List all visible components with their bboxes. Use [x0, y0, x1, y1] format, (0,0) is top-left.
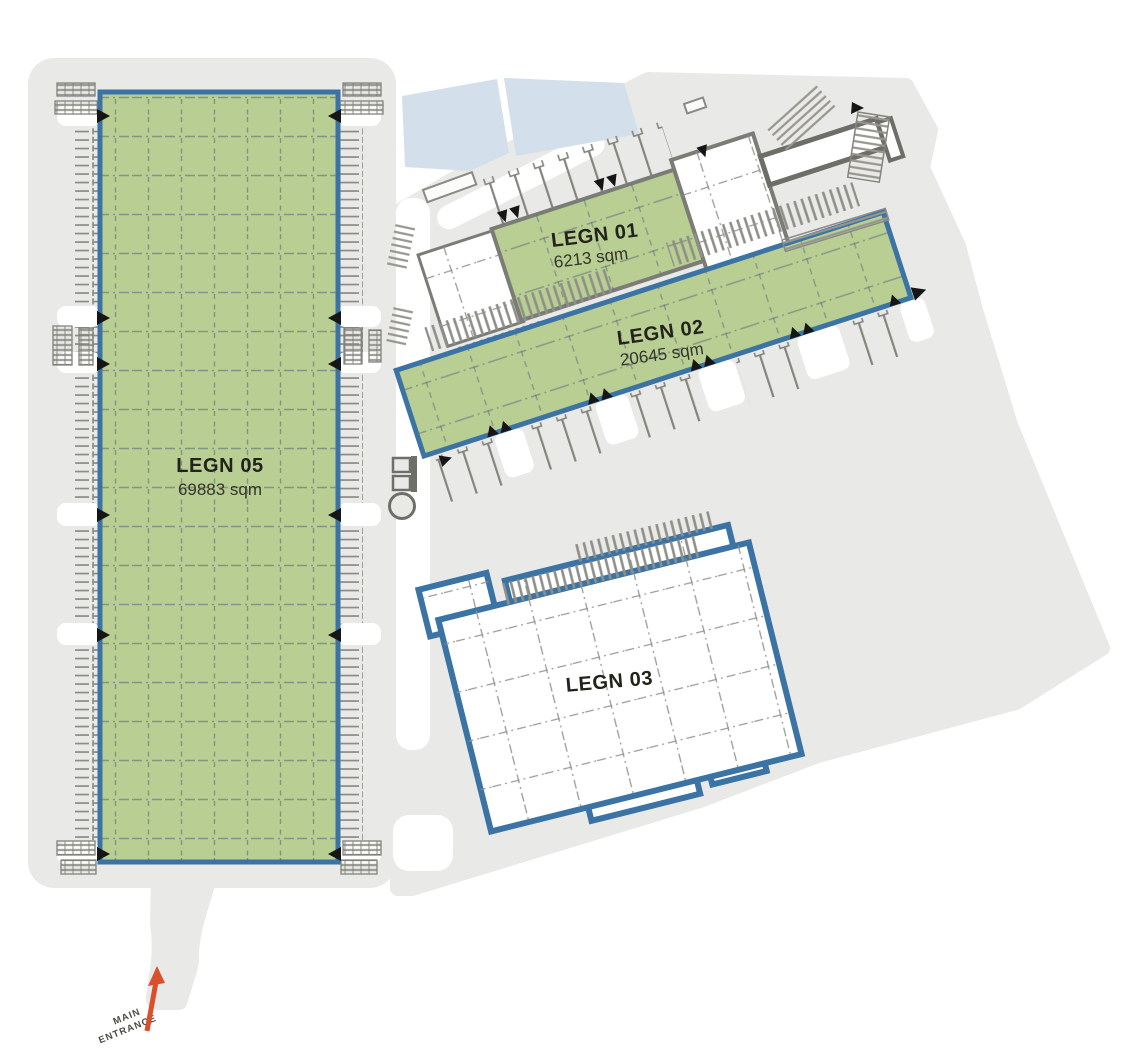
road-notch-south — [393, 815, 453, 871]
site-plan: LEGN 05 69883 sqm LEGN 01 6213 sqm LEGN … — [0, 0, 1138, 1058]
water-tank-icon — [390, 456, 418, 519]
svg-text:LEGN 05: LEGN 05 — [176, 455, 264, 477]
svg-text:69883 sqm: 69883 sqm — [178, 480, 262, 499]
building-legn-05[interactable] — [100, 92, 338, 862]
retention-pond-west — [402, 79, 509, 171]
